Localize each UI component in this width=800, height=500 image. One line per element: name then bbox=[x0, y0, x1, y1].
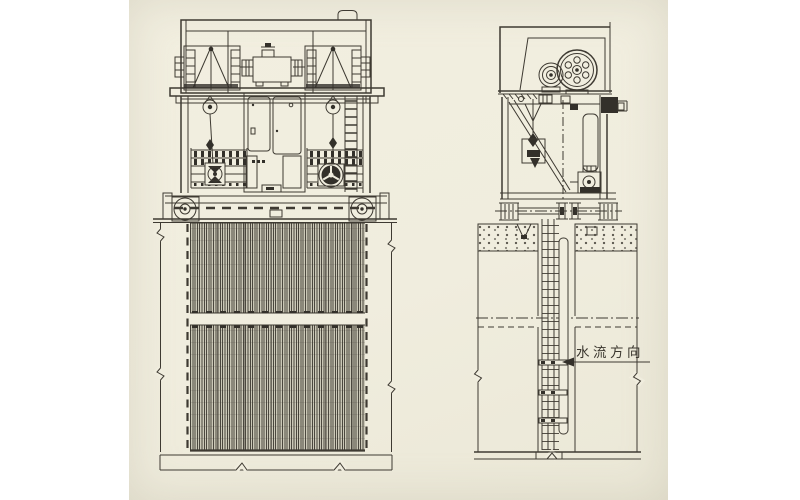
concrete-deck-side bbox=[478, 224, 637, 251]
bar-screen-borders bbox=[190, 223, 365, 451]
drive-unit-dark-block bbox=[601, 97, 627, 113]
roof-notch bbox=[338, 11, 357, 21]
flow-direction-label: 水流方向 bbox=[576, 345, 644, 361]
channel-walls-front bbox=[157, 223, 395, 452]
side-elevation-view: 水流方向 bbox=[474, 22, 650, 459]
travel-carriage bbox=[163, 193, 389, 221]
head-frame bbox=[181, 11, 371, 94]
rake-assembly-left bbox=[191, 148, 247, 188]
rake-carriage-side bbox=[522, 99, 545, 168]
access-ladder-front bbox=[345, 96, 357, 192]
motor-side bbox=[539, 63, 563, 92]
left-winch bbox=[175, 46, 253, 90]
drive-motor bbox=[242, 43, 302, 86]
winch-apex-pulley bbox=[331, 47, 336, 52]
cabinet-door-left bbox=[248, 97, 270, 151]
screen-side-edge bbox=[539, 219, 568, 450]
anchor-pocket bbox=[587, 227, 597, 235]
front-elevation-view bbox=[153, 11, 397, 471]
door-panel-side bbox=[583, 114, 598, 171]
right-winch bbox=[293, 46, 370, 90]
screen-guide-rail bbox=[559, 238, 568, 434]
rake-guide-arm bbox=[509, 100, 570, 192]
winch-apex-pulley bbox=[209, 47, 214, 52]
channel-bottom-band bbox=[160, 455, 392, 470]
platform-side bbox=[498, 91, 612, 110]
rake-assembly-right bbox=[307, 148, 363, 188]
page: 水流方向 bbox=[0, 0, 800, 500]
center-cabinet bbox=[244, 93, 305, 192]
body-frame-side bbox=[502, 95, 607, 199]
cabinet-door-right bbox=[273, 97, 301, 154]
technical-drawing-svg: 水流方向 bbox=[0, 0, 800, 500]
carriage-side bbox=[495, 193, 622, 220]
